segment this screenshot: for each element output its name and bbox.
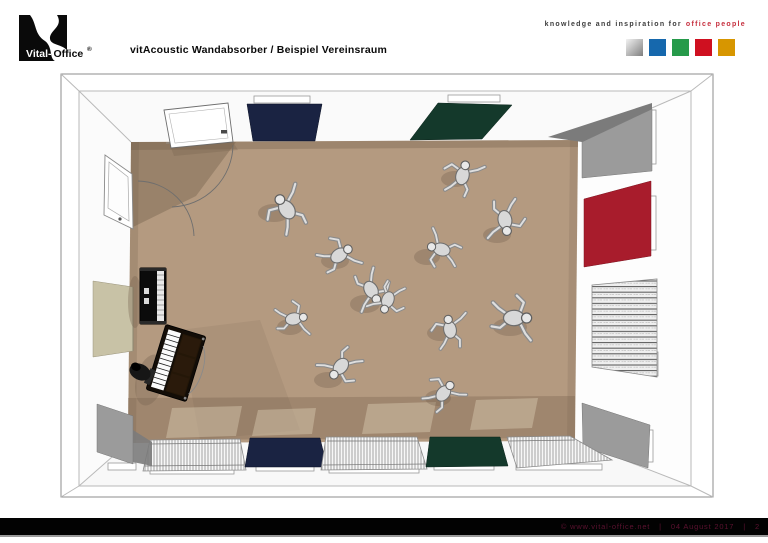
- slide: Vital- Office ® vitAcoustic Wandabsorber…: [0, 0, 768, 543]
- absorber-panel-beige-left: [93, 281, 133, 357]
- tagline-highlight: office people: [686, 21, 746, 28]
- footer-separator: |: [743, 522, 746, 531]
- tagline-text: knowledge and inspiration for: [545, 21, 682, 28]
- logo-text-vital: Vital-: [26, 48, 52, 60]
- brand-square-green: [672, 39, 689, 56]
- brand-square-red: [695, 39, 712, 56]
- footer-date: 04 August 2017: [671, 522, 734, 531]
- footer-separator: |: [659, 522, 662, 531]
- footer-copyright: © www.vital-office.net: [561, 522, 650, 531]
- footer-page-number: 2: [755, 522, 760, 531]
- cabinet: [140, 268, 166, 324]
- logo-text-office: Office: [54, 48, 84, 60]
- brand-square-gold: [718, 39, 735, 56]
- brand-square-blue: [649, 39, 666, 56]
- louver-panel-right: [592, 279, 657, 377]
- footer-bar: © www.vital-office.net|04 August 2017|2: [0, 518, 768, 535]
- absorber-panel-navy-bottom: [245, 438, 327, 467]
- absorber-panel-navy-top: [247, 104, 322, 141]
- page-title: vitAcoustic Wandabsorber / Beispiel Vere…: [130, 44, 387, 56]
- door-handle: [221, 130, 227, 134]
- absorber-panel-green-bottom: [426, 437, 508, 467]
- logo-registered-mark: ®: [87, 45, 92, 53]
- room-top-view: [0, 0, 768, 543]
- brand-squares: [626, 39, 735, 56]
- tagline: knowledge and inspiration foroffice peop…: [545, 21, 746, 28]
- footer-underline: [0, 535, 768, 537]
- brand-square-silver: [626, 39, 643, 56]
- vital-office-logo: Vital- Office ®: [19, 13, 129, 69]
